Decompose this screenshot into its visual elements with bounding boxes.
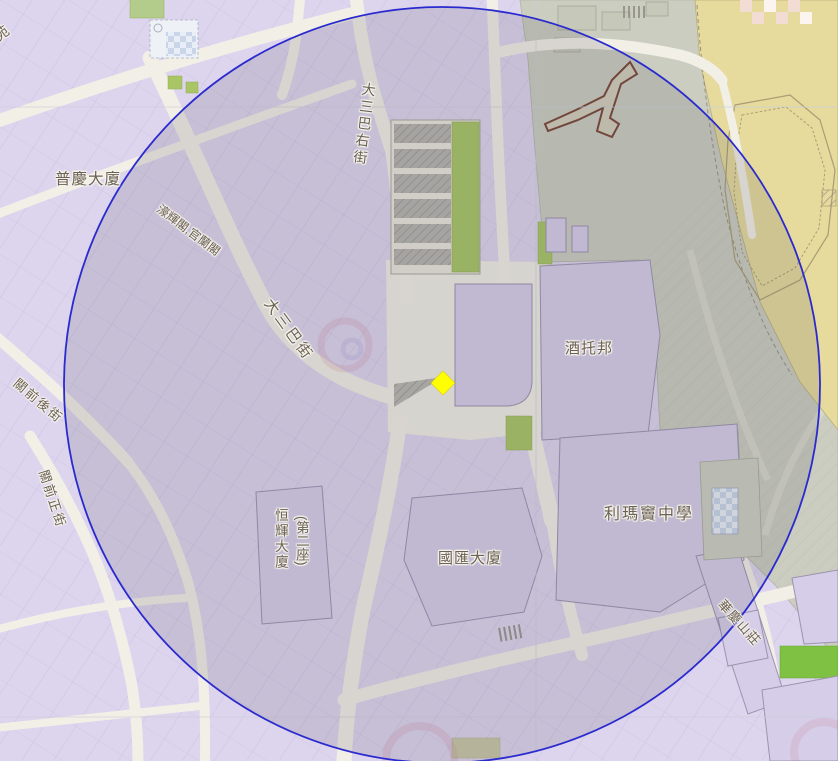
map-tiles xyxy=(0,0,838,761)
playground-area xyxy=(150,20,198,58)
map-canvas[interactable]: 苑 普慶大廈 濠輝閣,官蘭閣 大三巴右街 大三巴街 關前後街 關前正街 恒輝大廈… xyxy=(0,0,838,761)
